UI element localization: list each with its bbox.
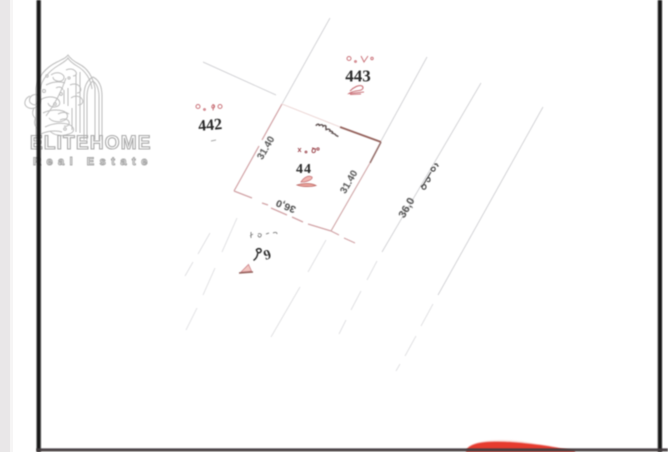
svg-text:443: 443 xyxy=(345,67,371,86)
svg-text:Real Estate: Real Estate xyxy=(33,156,153,168)
svg-text:ELITEHOME: ELITEHOME xyxy=(30,133,152,154)
svg-text:442: 442 xyxy=(197,116,222,135)
svg-text:44: 44 xyxy=(296,162,312,177)
